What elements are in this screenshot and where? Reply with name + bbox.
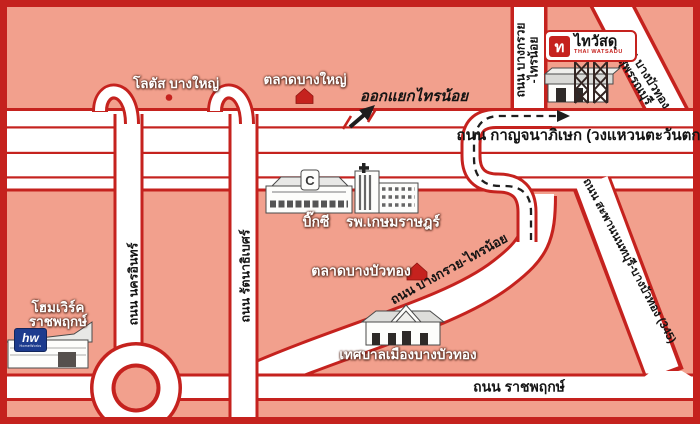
label-bigc: บิ๊กซี [303,215,330,230]
label-municipality: เทศบาลเมืองบางบัวทอง [339,348,476,362]
thaiwatsadu-logo-icon: ท [549,36,570,57]
label-road-ratchaphruek: ถนน ราชพฤกษ์ [473,380,565,395]
homework-logo-hw: hw [22,332,39,344]
label-road-bangkruai-north-line2: -ไทรน้อย [527,23,540,98]
label-road-bangkruai-north: ถนน บางกรวย -ไทรน้อย [514,23,539,98]
label-road-kanchanaphisek: ถนน กาญจนาภิเษก (วงแหวนตะวันตก) [457,128,700,144]
homework-logo: hw HomeWorks [14,328,47,352]
label-homework: โฮมเวิร์ค ราชพฤกษ์ [29,301,87,329]
label-road-rattanathibet: ถนน รัตนาธิเบศร์ [239,229,252,322]
map-canvas: C [0,0,700,424]
label-bangyai-market: ตลาดบางใหญ่ [263,73,346,87]
homework-logo-sub: HomeWorks [20,344,42,348]
label-road-bangkruai-north-line1: ถนน บางกรวย [514,23,527,98]
label-bangbuathong-market: ตลาดบางบัวทอง [311,264,410,279]
svg-text:C: C [305,173,315,188]
label-road-nakhon-in: ถนน นครอินทร์ [127,243,140,326]
label-lotus-bangyai: โลตัส บางใหญ่ [133,77,219,91]
road-kanchanaphisek [0,108,700,192]
label-exit-sainoi: ออกแยกไทรน้อย [360,89,468,105]
thaiwatsadu-name-latin: THAI WATSADU [574,49,623,57]
thaiwatsadu-logo: ท ไทวัสดุ THAI WATSADU [544,30,637,62]
red-dot-marker-lotus [166,94,173,101]
label-kasemrad-hospital: รพ.เกษมราษฎร์ [346,215,440,230]
thaiwatsadu-name-thai: ไทวัสดุ [574,35,623,50]
